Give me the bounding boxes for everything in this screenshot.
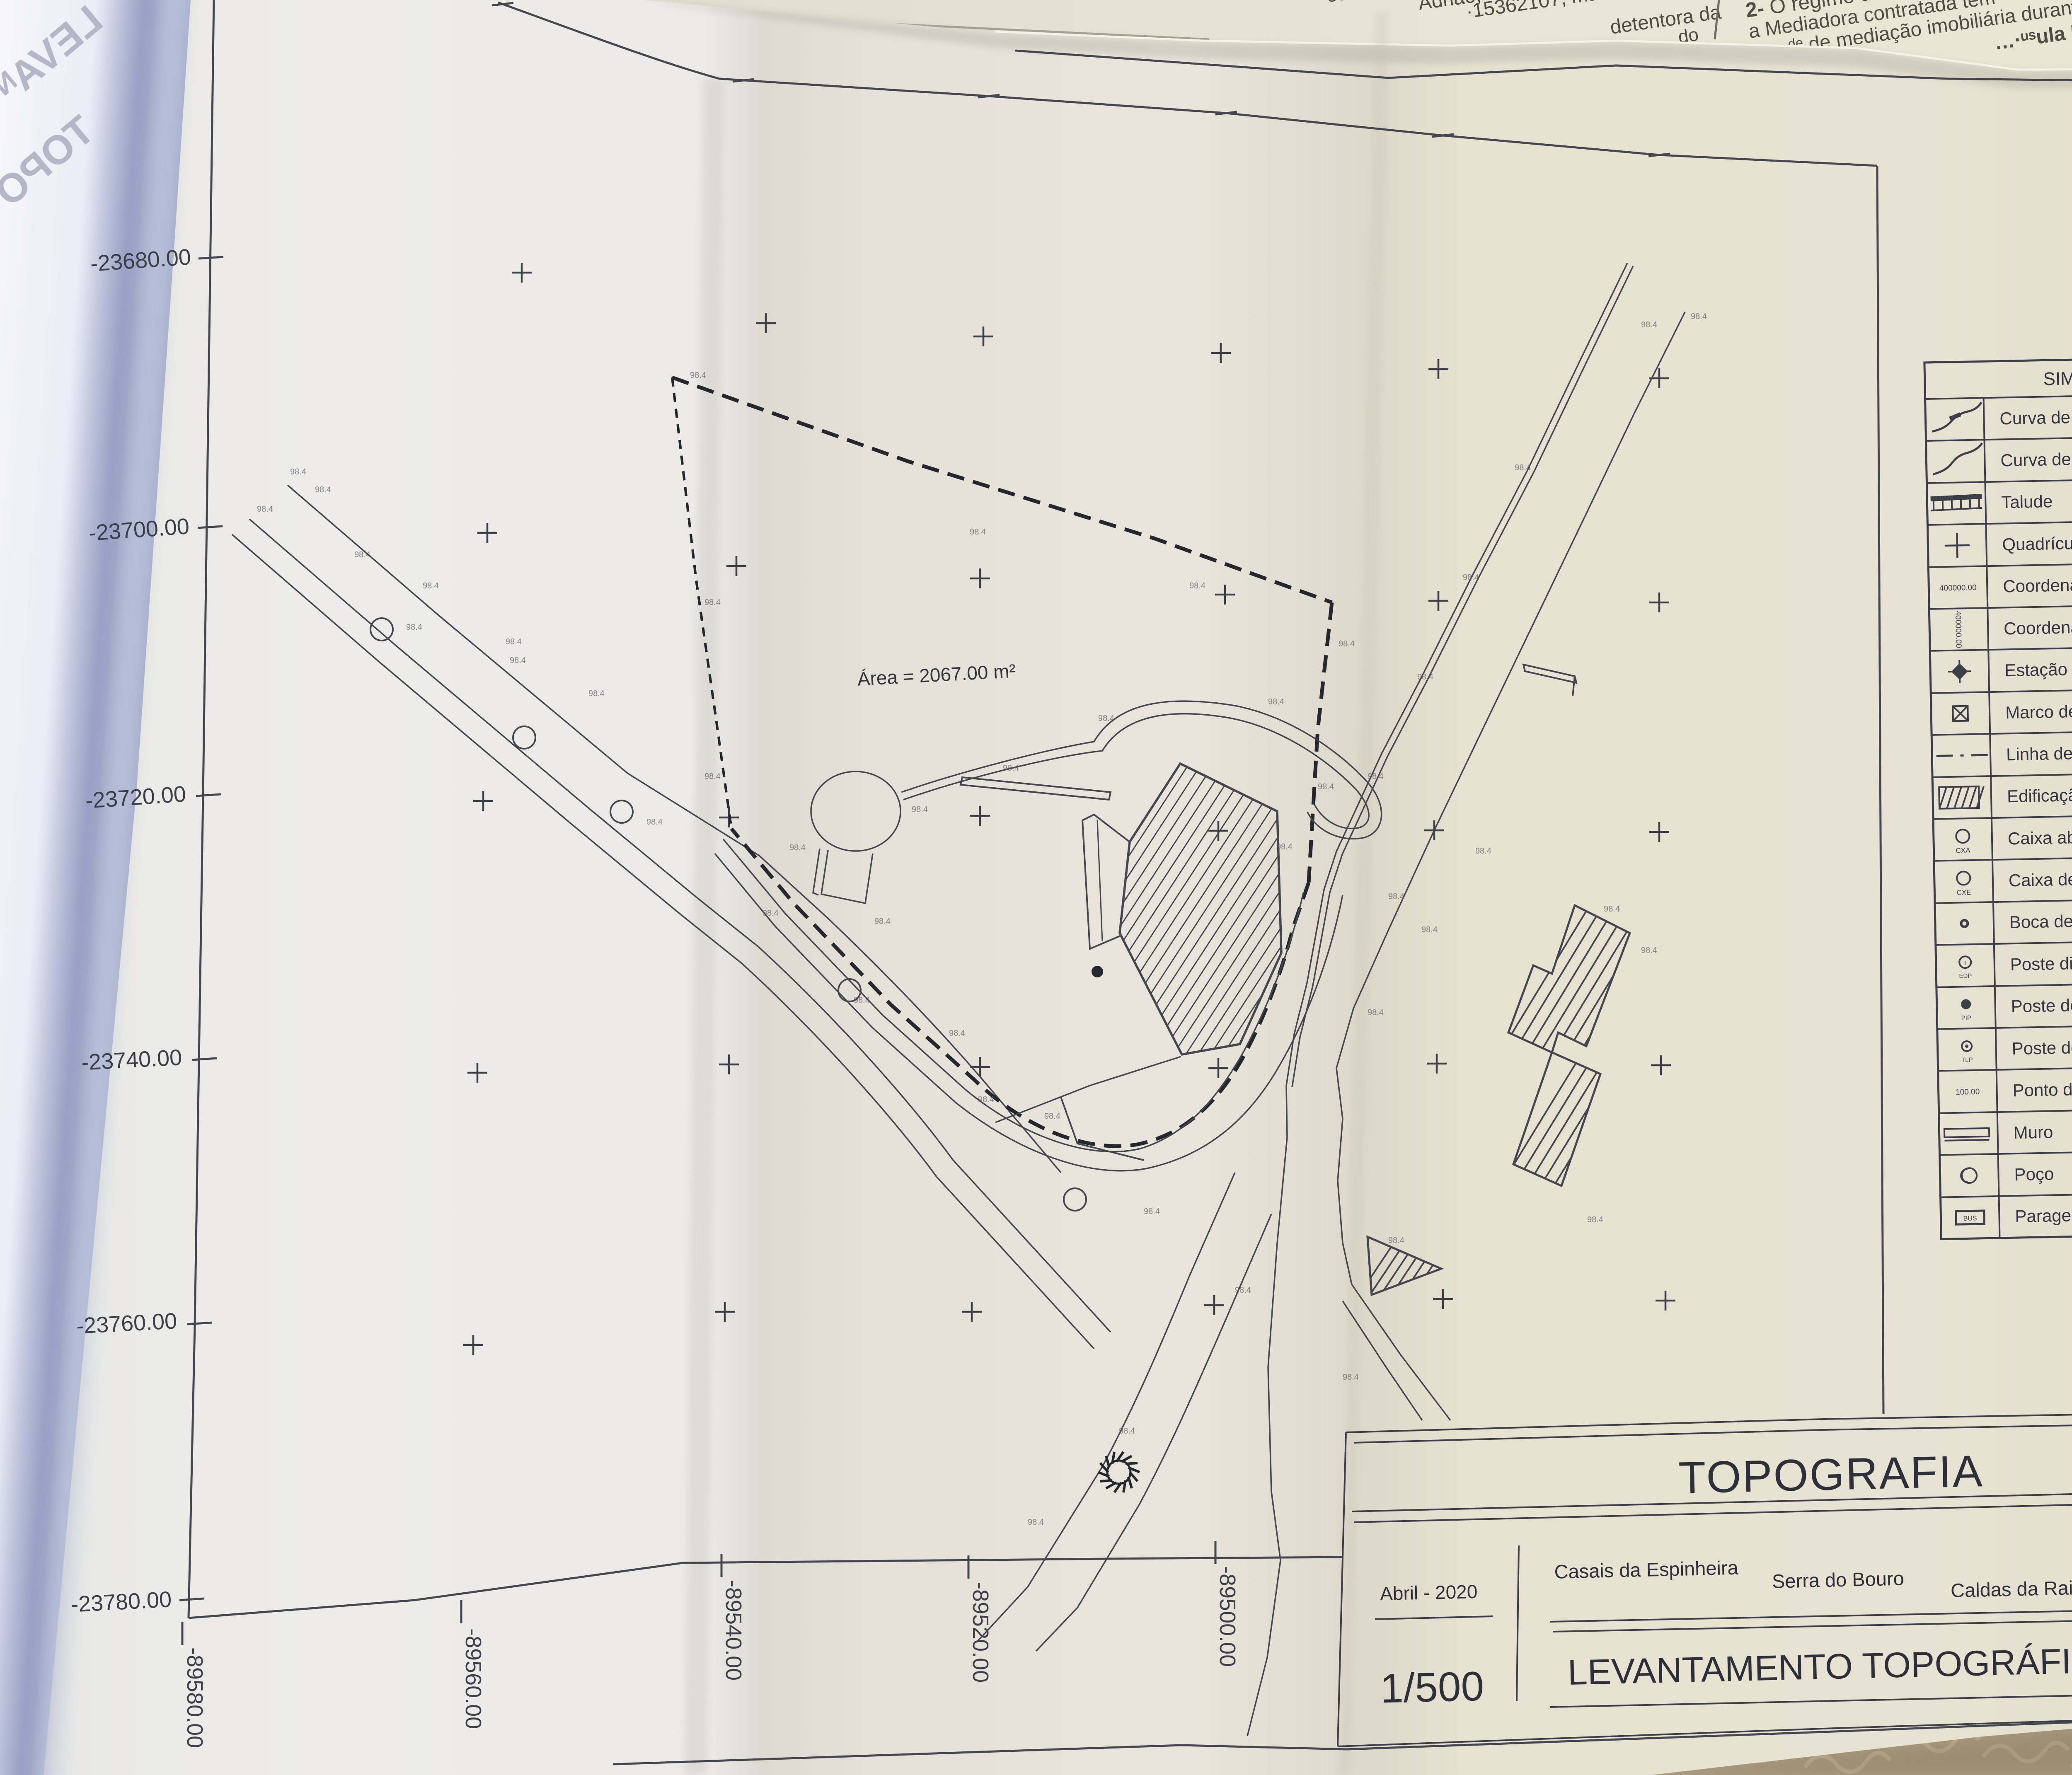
svg-text:98.4: 98.4	[1343, 1373, 1359, 1382]
svg-text:Edificação: Edificação	[2007, 785, 2072, 806]
svg-text:98.4: 98.4	[704, 772, 721, 781]
svg-text:98.4: 98.4	[1604, 904, 1620, 914]
svg-text:98.4: 98.4	[762, 909, 779, 918]
svg-text:98.4: 98.4	[1463, 573, 1479, 582]
svg-text:Linha de estrema: Linha de estrema	[2006, 742, 2072, 764]
svg-text:98.4: 98.4	[315, 485, 331, 494]
svg-text:98.4: 98.4	[1276, 842, 1293, 851]
svg-text:TLP: TLP	[1961, 1057, 1973, 1064]
svg-text:98.4: 98.4	[1587, 1215, 1603, 1224]
svg-text:Coordenada p: Coordenada p	[2003, 574, 2072, 596]
svg-text:98.4: 98.4	[1144, 1207, 1160, 1216]
svg-text:PIP: PIP	[1961, 1014, 1972, 1021]
svg-text:Quadrícula de coordenação: Quadrícula de coordenação	[2002, 531, 2072, 554]
svg-text:98.4: 98.4	[1028, 1518, 1044, 1527]
svg-text:98.4: 98.4	[290, 467, 306, 476]
svg-text:TOPOGRAFIA: TOPOGRAFIA	[1678, 1446, 1984, 1503]
svg-text:98.4: 98.4	[406, 623, 422, 632]
svg-text:SIMBOLOGIA: SIMBOLOGIA	[2043, 367, 2072, 389]
svg-text:Estação: Estação	[2004, 660, 2068, 680]
svg-text:98.4: 98.4	[690, 371, 706, 380]
svg-text:Talude: Talude	[2001, 491, 2053, 512]
svg-text:98.4: 98.4	[510, 656, 526, 665]
svg-text:-89500.00: -89500.00	[1215, 1566, 1240, 1667]
svg-text:98.4: 98.4	[257, 505, 273, 514]
svg-text:98.4: 98.4	[646, 817, 663, 827]
svg-text:Poste distribuição EDP: Poste distribuição EDP	[2010, 951, 2072, 974]
svg-text:98.4: 98.4	[912, 805, 928, 814]
svg-text:Caldas da Rainha: Caldas da Rainha	[1951, 1576, 2072, 1601]
svg-text:BUS: BUS	[1963, 1215, 1977, 1222]
svg-text:100.00: 100.00	[1956, 1088, 1980, 1097]
svg-text:98.4: 98.4	[1268, 697, 1284, 706]
svg-text:Poço: Poço	[2014, 1164, 2054, 1184]
svg-text:98.4: 98.4	[1119, 1427, 1135, 1436]
svg-text:98.4: 98.4	[1044, 1112, 1060, 1121]
svg-text:98.4: 98.4	[1641, 946, 1657, 955]
svg-text:98.4: 98.4	[1641, 320, 1657, 329]
svg-text:98.4: 98.4	[704, 598, 721, 607]
svg-text:98.4: 98.4	[1515, 463, 1531, 472]
svg-text:98.4: 98.4	[949, 1029, 965, 1038]
svg-text:-89560.00: -89560.00	[461, 1628, 486, 1729]
svg-text:Boca de incêndio: Boca de incêndio	[2009, 910, 2072, 932]
svg-text:Ponto de cota: Ponto de cota	[2012, 1079, 2072, 1100]
svg-text:98.4: 98.4	[970, 527, 986, 537]
svg-text:Caixa de esgoto doméstico: Caixa de esgoto doméstico	[2008, 867, 2072, 890]
svg-text:400000.00: 400000.00	[1939, 583, 1977, 593]
svg-text:98.4: 98.4	[1388, 1236, 1404, 1245]
svg-text:1/500: 1/500	[1380, 1663, 1485, 1712]
svg-text:-23780.00: -23780.00	[70, 1587, 172, 1617]
svg-text:98.4: 98.4	[789, 843, 806, 852]
svg-text:Muro: Muro	[2013, 1122, 2053, 1142]
svg-text:Coordenada m: Coordenada m	[2004, 617, 2072, 638]
svg-text:98.4: 98.4	[1339, 639, 1355, 648]
svg-text:-23740.00: -23740.00	[81, 1045, 183, 1075]
svg-text:Poste de telecomunicações: Poste de telecomunicações	[2011, 1035, 2072, 1058]
svg-text:98.4: 98.4	[978, 1095, 994, 1104]
svg-text:Poste de iluminação: Poste de iluminação	[2011, 994, 2072, 1016]
svg-text:98.4: 98.4	[1318, 782, 1334, 791]
svg-text:98.4: 98.4	[1421, 925, 1438, 934]
svg-text:-89540.00: -89540.00	[721, 1580, 746, 1681]
svg-text:CXE: CXE	[1956, 888, 1971, 897]
svg-text:98.4: 98.4	[423, 581, 439, 590]
svg-text:98.4: 98.4	[1368, 772, 1384, 781]
svg-text:Casais da Espinheira: Casais da Espinheira	[1554, 1557, 1739, 1583]
svg-text:98.4: 98.4	[1003, 764, 1019, 773]
svg-text:Serra do Bouro: Serra do Bouro	[1772, 1567, 1904, 1592]
svg-text:98.4: 98.4	[588, 689, 605, 698]
svg-text:98.4: 98.4	[1388, 892, 1404, 901]
svg-text:Paragem BUS: Paragem BUS	[2015, 1204, 2072, 1226]
svg-text:98.4: 98.4	[874, 917, 891, 926]
svg-text:98.4: 98.4	[506, 637, 522, 646]
svg-text:CXA: CXA	[1956, 846, 1970, 855]
svg-text:T: T	[1963, 960, 1967, 967]
svg-text:-89520.00: -89520.00	[968, 1582, 993, 1683]
svg-text:98.4: 98.4	[1098, 714, 1114, 723]
svg-text:98.4: 98.4	[854, 996, 870, 1005]
svg-text:98.4: 98.4	[1235, 1286, 1251, 1295]
svg-text:98.4: 98.4	[1417, 672, 1433, 682]
svg-text:EDP: EDP	[1959, 972, 1972, 980]
svg-text:98.4: 98.4	[1691, 312, 1707, 321]
svg-text:-89580.00: -89580.00	[182, 1647, 207, 1748]
svg-text:Abril - 2020: Abril - 2020	[1380, 1581, 1478, 1604]
svg-text:-23760.00: -23760.00	[76, 1308, 178, 1339]
svg-text:98.4: 98.4	[1475, 846, 1491, 856]
svg-text:400000.00: 400000.00	[1953, 611, 1963, 648]
svg-text:98.4: 98.4	[354, 550, 370, 559]
svg-text:98.4: 98.4	[1189, 581, 1205, 590]
svg-text:98.4: 98.4	[1368, 1008, 1384, 1017]
svg-text:Curva de nível secundária: Curva de nível secundária	[2000, 447, 2072, 470]
